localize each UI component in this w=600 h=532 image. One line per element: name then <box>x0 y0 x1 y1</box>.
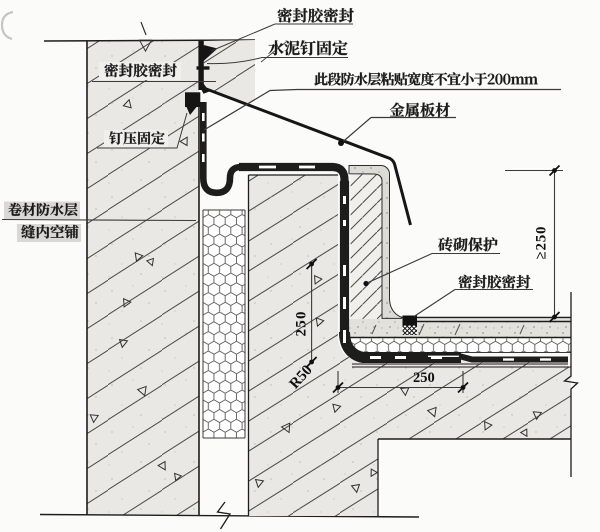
svg-text:250: 250 <box>294 312 310 337</box>
svg-text:≥250: ≥250 <box>534 227 550 260</box>
svg-text:250: 250 <box>413 370 435 386</box>
